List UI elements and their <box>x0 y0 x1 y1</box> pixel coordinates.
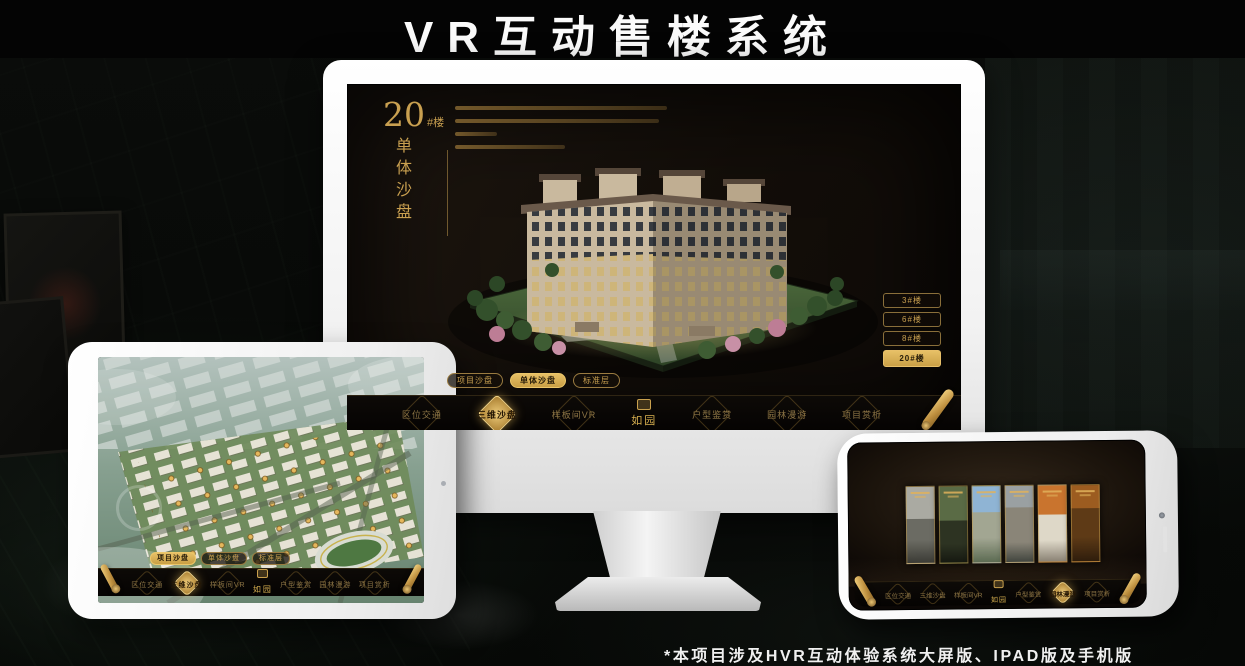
nav-item-floorplan-gallery[interactable]: 户型鉴赏 <box>1015 584 1041 602</box>
nav-item-location-traffic[interactable]: 区位交通 <box>131 574 163 592</box>
nav-item-project-showcase[interactable]: 项目赏析 <box>359 574 391 592</box>
nav-item-model-room-vr[interactable]: 样板间VR <box>552 405 597 423</box>
footnote-caption: *本项目涉及HVR互动体验系统大屏版、IPAD版及手机版 <box>664 642 1134 666</box>
nav-item-3d-sandbox[interactable]: 三维沙盘 <box>171 574 203 592</box>
logo-seal-icon <box>257 569 268 578</box>
logo-seal-icon <box>637 399 651 410</box>
nav-item-project-showcase[interactable]: 项目赏析 <box>1084 583 1110 601</box>
gallery-panel-interior-green[interactable] <box>939 485 969 563</box>
background-river-texture <box>1000 250 1245 310</box>
nav-item-model-room-vr[interactable]: 样板间VR <box>954 584 983 602</box>
brand-logo: 如园 <box>991 580 1007 606</box>
phone-device: 区位交通 三维沙盘 样板间VR 如园 户型鉴赏 园林漫游 <box>837 430 1179 620</box>
gallery-panel-tower-sky[interactable] <box>972 485 1002 563</box>
nav-item-project-showcase[interactable]: 项目赏析 <box>842 405 882 423</box>
nav-item-3d-sandbox[interactable]: 三维沙盘 <box>919 585 945 603</box>
floor-button-3[interactable]: 3#楼 <box>883 293 941 308</box>
description-text-lines <box>455 106 667 158</box>
tab-project-sandbox[interactable]: 项目沙盘 <box>447 373 503 388</box>
nav-item-floorplan-gallery[interactable]: 户型鉴赏 <box>692 405 732 423</box>
tab-standard-floor[interactable]: 标准层 <box>573 373 620 388</box>
phone-camera-icon <box>1159 512 1165 518</box>
nav-item-floorplan-gallery[interactable]: 户型鉴赏 <box>280 574 312 592</box>
watermark-circle-icon <box>116 485 162 531</box>
tab-single-sandbox[interactable]: 单体沙盘 <box>201 552 247 565</box>
phone-screen: 区位交通 三维沙盘 样板间VR 如园 户型鉴赏 园林漫游 <box>847 440 1147 611</box>
building-subtitle-vertical: 单体沙盘 <box>389 137 413 241</box>
monitor-screen: 20#楼 单体沙盘 3#楼 6#楼 8#楼 20#楼 项目沙盘 单体沙盘 标准层 <box>347 84 961 430</box>
monitor-stand-neck <box>593 511 721 581</box>
phone-main-nav: 区位交通 三维沙盘 样板间VR 如园 户型鉴赏 园林漫游 <box>855 579 1141 607</box>
gold-divider-line <box>447 150 448 236</box>
gallery-panel-courtyard-bw[interactable] <box>906 486 936 564</box>
nav-item-garden-roam[interactable]: 园林漫游 <box>767 405 807 423</box>
tablet-main-nav: 区位交通 三维沙盘 样板间VR 如园 户型鉴赏 园林漫游 <box>98 568 424 596</box>
nav-item-garden-roam[interactable]: 园林漫游 <box>319 574 351 592</box>
logo-seal-icon <box>994 580 1004 588</box>
tab-single-sandbox[interactable]: 单体沙盘 <box>510 373 566 388</box>
brand-logo: 如园 <box>253 569 273 596</box>
building-title-block: 20#楼 单体沙盘 <box>383 98 444 241</box>
floor-button-8[interactable]: 8#楼 <box>883 331 941 346</box>
building-number: 20 <box>383 95 425 134</box>
gallery-panel-interior-warm[interactable] <box>1071 484 1101 562</box>
tablet-view-tabs: 项目沙盘 单体沙盘 标准层 <box>150 552 295 565</box>
tab-project-sandbox[interactable]: 项目沙盘 <box>150 552 196 565</box>
monitor-view-tabs: 项目沙盘 单体沙盘 标准层 <box>447 373 627 388</box>
scroll-gallery <box>906 484 1101 564</box>
poster: VR互动售楼系统 <box>0 0 1245 666</box>
nav-item-location-traffic[interactable]: 区位交通 <box>885 585 911 603</box>
nav-item-location-traffic[interactable]: 区位交通 <box>402 405 442 423</box>
floor-button-20[interactable]: 20#楼 <box>883 350 941 367</box>
floor-button-group: 3#楼 6#楼 8#楼 20#楼 <box>883 293 943 371</box>
scroll-icon[interactable] <box>402 563 422 593</box>
gallery-panel-autumn-trees[interactable] <box>1038 484 1068 562</box>
wall-plaque-partial <box>0 296 77 460</box>
brand-logo: 如园 <box>631 399 657 428</box>
tab-standard-floor[interactable]: 标准层 <box>252 552 290 565</box>
floor-button-6[interactable]: 6#楼 <box>883 312 941 327</box>
monitor-stand-base <box>555 577 761 611</box>
nav-item-garden-roam[interactable]: 园林漫游 <box>1050 583 1076 601</box>
monitor-main-nav: 区位交通 三维沙盘 样板间VR 如园 户型鉴赏 园林漫游 <box>347 395 961 430</box>
building-number-suffix: #楼 <box>427 117 444 129</box>
scroll-icon[interactable] <box>99 563 119 593</box>
phone-speaker-icon <box>1163 526 1167 552</box>
gallery-panel-building-facade[interactable] <box>1005 485 1035 563</box>
tablet-camera-icon <box>441 481 446 486</box>
page-title: VR互动售楼系统 <box>0 1 1245 65</box>
nav-item-3d-sandbox[interactable]: 三维沙盘 <box>477 405 517 423</box>
nav-item-model-room-vr[interactable]: 样板间VR <box>210 574 246 592</box>
